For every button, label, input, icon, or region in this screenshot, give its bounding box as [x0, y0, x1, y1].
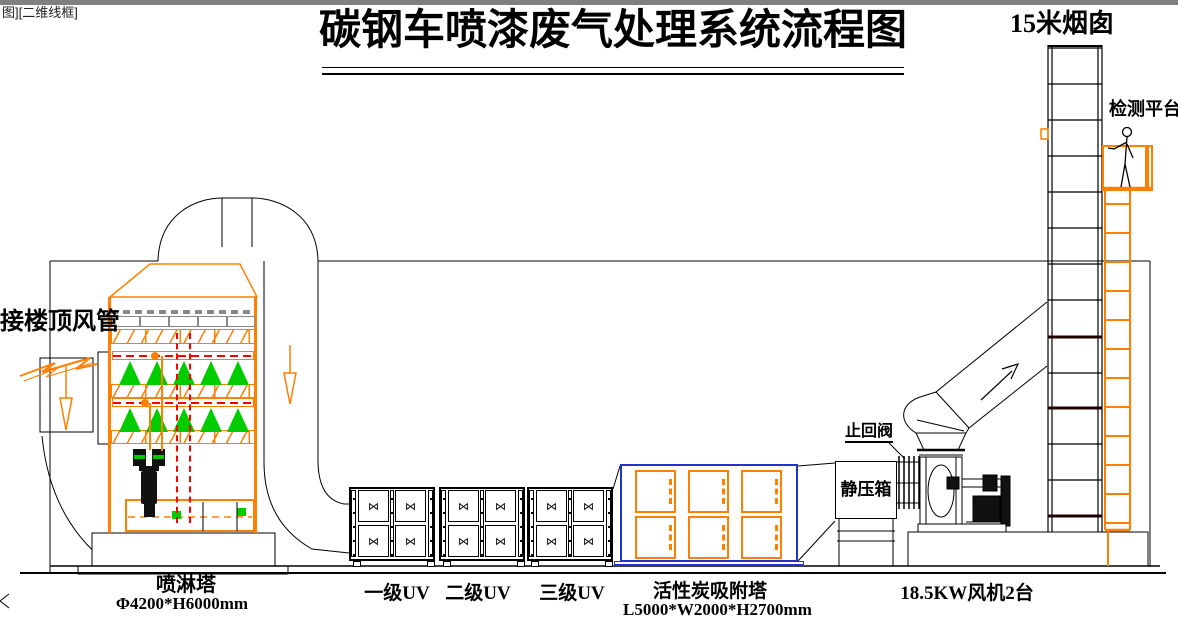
carbon-door	[741, 516, 782, 559]
demister-dashes	[111, 310, 255, 314]
flow-diagram-canvas: ⋈ ⋈ ⋈ ⋈ ⋈ ⋈ ⋈ ⋈ ⋈ ⋈ ⋈ ⋈ 静压箱 图][二维线框] 碳钢车…	[0, 0, 1178, 621]
check-valve-connector	[896, 456, 921, 509]
check-valve-leader	[889, 443, 905, 459]
door-handle-icon: ⋈	[583, 500, 594, 513]
title-underline	[322, 67, 904, 68]
carbon-door	[688, 516, 729, 559]
spray-cone	[200, 361, 222, 385]
door-handle-icon: ⋈	[495, 500, 506, 513]
door-handle-icon: ⋈	[405, 500, 416, 513]
carbon-door	[635, 470, 676, 513]
carbon-adsorption-tower	[620, 464, 798, 562]
door-handle-icon: ⋈	[495, 535, 506, 548]
static-box-stand	[837, 519, 895, 566]
static-box-label: 静压箱	[841, 481, 892, 500]
spray-nozzle	[151, 352, 159, 360]
demister-layer	[111, 316, 255, 327]
roof-duct-label: 接楼顶风管	[0, 309, 120, 335]
carbon-door	[741, 470, 782, 513]
suction-pipe	[176, 333, 178, 523]
uv1-label: 一级UV	[357, 584, 437, 605]
door-handle-icon: ⋈	[458, 500, 469, 513]
packing-truss-1	[111, 329, 255, 344]
spray-nozzle	[141, 399, 149, 407]
door-handle-icon: ⋈	[405, 535, 416, 548]
uv3-label: 三级UV	[532, 584, 612, 605]
uv-to-carbon-line	[613, 466, 620, 489]
spray-riser-pipe	[149, 403, 151, 450]
tower-hood	[110, 264, 257, 297]
packing-truss-3	[111, 430, 255, 444]
door-handle-icon: ⋈	[546, 535, 557, 548]
axis-marker	[0, 594, 9, 608]
uv-foot	[427, 561, 435, 567]
static-pressure-box: 静压箱	[835, 461, 897, 519]
spray-cone	[200, 408, 222, 432]
spray-cone	[227, 408, 249, 432]
uv2-label: 二级UV	[438, 584, 518, 605]
door-handle-icon: ⋈	[368, 535, 379, 548]
packing-truss-2	[111, 384, 255, 398]
spray-riser-pipe	[161, 356, 163, 451]
downcomer-duct	[264, 261, 349, 553]
spray-cone	[227, 361, 249, 385]
door-handle-icon: ⋈	[546, 500, 557, 513]
worker-icon	[1108, 128, 1133, 188]
uv-unit-3: ⋈ ⋈ ⋈ ⋈	[527, 487, 613, 561]
fan-outlet-duct	[904, 302, 1047, 455]
fan-motor	[973, 496, 1000, 522]
title-underline	[322, 73, 904, 75]
carbon-dims: L5000*W2000*H2700mm	[623, 601, 793, 620]
suction-pipe	[189, 333, 191, 523]
spray-tower-dims: Φ4200*H6000mm	[112, 595, 252, 614]
uv-unit-1: ⋈ ⋈ ⋈ ⋈	[349, 487, 435, 561]
chimney-label: 15米烟囱	[1010, 10, 1114, 39]
inspection-platform	[1103, 146, 1152, 190]
sampling-port	[1041, 129, 1048, 139]
spray-cone	[119, 361, 141, 385]
tower-base	[78, 533, 288, 574]
fan	[918, 457, 1010, 532]
down-arrow-icon	[60, 366, 72, 430]
fan-foundation	[908, 532, 1148, 566]
access-ladder	[1105, 190, 1130, 566]
uv-unit-2: ⋈ ⋈ ⋈ ⋈	[439, 487, 525, 561]
chimney	[1048, 45, 1102, 532]
down-arrow-icon	[284, 345, 296, 404]
uv-foot	[443, 561, 451, 567]
fan-label: 18.5KW风机2台	[897, 584, 1037, 605]
carbon-to-static-transition	[798, 463, 835, 561]
flow-arrow-icon	[981, 364, 1018, 400]
door-handle-icon: ⋈	[583, 535, 594, 548]
lightning-arrow-icon	[20, 358, 97, 381]
circulation-pump	[133, 449, 165, 517]
spray-header-1	[112, 351, 254, 360]
viewport-label: 图][二维线框]	[2, 6, 78, 20]
carbon-door	[635, 516, 676, 559]
platform-label: 检测平台	[1109, 100, 1178, 120]
spray-cone	[146, 361, 168, 385]
check-valve-label: 止回阀	[845, 423, 893, 441]
tower-top-elbow	[158, 198, 318, 261]
spray-header-2	[112, 398, 254, 407]
carbon-door	[688, 470, 729, 513]
uv-foot	[353, 561, 361, 567]
door-handle-icon: ⋈	[368, 500, 379, 513]
uv-foot	[605, 561, 613, 567]
page-title: 碳钢车喷漆废气处理系统流程图	[318, 8, 908, 54]
door-handle-icon: ⋈	[458, 535, 469, 548]
screen-edge-strip	[0, 0, 1178, 5]
belt-guard	[1001, 476, 1010, 526]
carbon-tower-skid	[614, 561, 804, 565]
spray-tower-label: 喷淋塔	[136, 574, 236, 596]
uv-foot	[517, 561, 525, 567]
uv-foot	[531, 561, 539, 567]
spray-cone	[119, 408, 141, 432]
